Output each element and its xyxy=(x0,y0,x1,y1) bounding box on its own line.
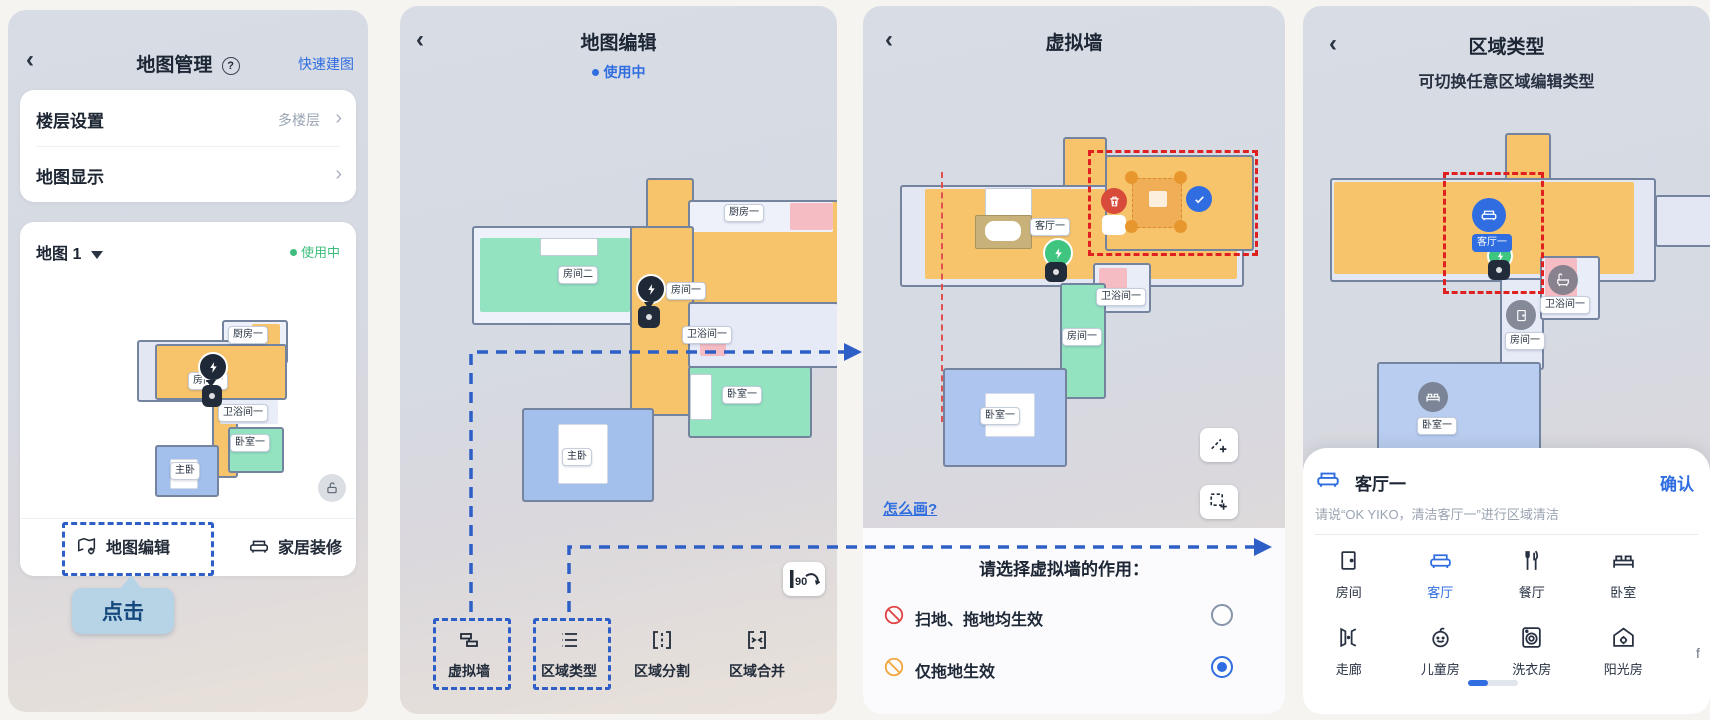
room-chip: 房间二 xyxy=(558,266,598,284)
type-label: 儿童房 xyxy=(1421,659,1460,678)
home-decor-label: 家居装修 xyxy=(278,534,342,558)
type-label: 客厅 xyxy=(1427,582,1453,601)
virtual-wall-highlight-box xyxy=(433,618,511,690)
selection-highlight-box xyxy=(1443,172,1544,294)
map-card: 地图 1 使用中 厨房一 房间一 卫浴间一 卧室一 xyxy=(20,222,356,576)
room-chip: 卫浴间一 xyxy=(682,326,732,344)
room-chip: 厨房一 xyxy=(228,326,268,344)
page-title-text: 地图管理 xyxy=(136,55,212,76)
floor-plan: 客厅一 卫浴间一 房间一 卧室一 xyxy=(863,6,1285,528)
room-chip: 卫浴间一 xyxy=(1540,296,1590,314)
add-rect-zone-button[interactable] xyxy=(1200,485,1238,519)
confirm-button[interactable]: 确认 xyxy=(1660,470,1694,495)
room-chip: 主卧 xyxy=(562,448,592,466)
panel-map-edit: ‹ 地图编辑 使用中 厨房一 房间二 房间一 卫浴间一 卧室一 主卧 xyxy=(400,6,837,714)
home-decor-button[interactable]: 家居装修 xyxy=(248,534,342,558)
room-chip: 主卧 xyxy=(170,462,200,480)
robot-icon xyxy=(1045,262,1067,282)
no-entry-icon xyxy=(883,656,905,678)
type-living-room[interactable]: 客厅 xyxy=(1427,548,1453,601)
area-type-highlight-box xyxy=(533,618,611,690)
room-chip: 卫浴间一 xyxy=(1096,288,1146,306)
virtual-wall-line[interactable] xyxy=(941,172,943,422)
merge-brackets-icon xyxy=(745,628,769,652)
panel-virtual-wall: ‹ 虚拟墙 客厅一 卫浴间一 房间一 卧室一 xyxy=(863,6,1285,714)
option-mop-only[interactable]: 仅拖地生效 xyxy=(863,650,1285,686)
option-label: 仅拖地生效 xyxy=(915,658,995,682)
chevron-right-icon: › xyxy=(335,164,342,184)
room-chip: 卧室一 xyxy=(722,386,762,404)
panel-map-management: ‹ 地图管理 ? 快速建图 楼层设置 多楼层 › 地图显示 › 地图 1 xyxy=(8,10,368,712)
floor-settings-value: 多楼层 xyxy=(278,110,320,130)
type-label: 走廊 xyxy=(1336,659,1362,678)
type-kids-room[interactable]: 儿童房 xyxy=(1421,625,1460,678)
help-icon[interactable]: ? xyxy=(222,57,240,75)
type-label: 餐厅 xyxy=(1519,582,1545,601)
pagination-thumb[interactable] xyxy=(1468,680,1488,686)
room-chip: 卫浴间一 xyxy=(218,404,268,422)
zone-handle[interactable] xyxy=(1125,220,1138,233)
delete-zone-button[interactable] xyxy=(1101,188,1127,214)
room-type-grid: 房间 客厅 餐厅 卧室 走廊 xyxy=(1303,548,1669,678)
type-sunroom[interactable]: 阳光房 xyxy=(1604,625,1643,678)
floor-plan: 厨房一 房间二 房间一 卫浴间一 卧室一 主卧 xyxy=(400,6,837,566)
split-brackets-icon xyxy=(650,628,674,652)
floor-plan: 客厅一 卫浴间一 房间一 卧室一 xyxy=(1303,6,1710,448)
radio-sweep-mop[interactable] xyxy=(1211,604,1233,626)
add-line-wall-button[interactable] xyxy=(1200,428,1238,462)
room-chip: 房间一 xyxy=(666,282,706,300)
toolbar-label: 区域合并 xyxy=(729,661,785,681)
room-chip: 房间一 xyxy=(1505,332,1545,350)
type-dining-room[interactable]: 餐厅 xyxy=(1519,548,1545,601)
map-edit-highlight-box xyxy=(62,522,214,576)
cutoff-text: f xyxy=(1696,645,1700,661)
wall-mode-prompt: 请选择虚拟墙的作用： xyxy=(863,555,1265,580)
type-label: 卧室 xyxy=(1610,582,1636,601)
arrowhead-icon xyxy=(844,343,862,361)
how-to-draw-link[interactable]: 怎么画? xyxy=(883,498,937,519)
svg-text:90: 90 xyxy=(795,576,807,588)
sofa-icon xyxy=(248,535,270,557)
type-room[interactable]: 房间 xyxy=(1336,548,1362,601)
panel-area-type: ‹ 区域类型 可切换任意区域编辑类型 客厅一 xyxy=(1303,6,1710,714)
option-sweep-mop[interactable]: 扫地、拖地均生效 xyxy=(863,598,1285,634)
toolbar-label: 区域分割 xyxy=(634,661,690,681)
option-label: 扫地、拖地均生效 xyxy=(915,606,1043,630)
floor-settings-label: 楼层设置 xyxy=(36,107,104,132)
zone-handle[interactable] xyxy=(1125,171,1138,184)
virtual-wall-zone[interactable] xyxy=(1132,178,1182,228)
room-type-sheet: 客厅一 确认 请说“OK YIKO，清洁客厅一”进行区域清洁 房间 客厅 餐厅 xyxy=(1303,448,1710,714)
type-bedroom[interactable]: 卧室 xyxy=(1610,548,1636,601)
quick-build-link[interactable]: 快速建图 xyxy=(298,54,354,74)
confirm-zone-button[interactable] xyxy=(1186,186,1212,212)
type-corridor[interactable]: 走廊 xyxy=(1336,625,1362,678)
floor-settings-row[interactable]: 楼层设置 多楼层 › xyxy=(20,90,356,146)
robot-icon xyxy=(202,385,222,407)
type-label: 洗衣房 xyxy=(1512,659,1551,678)
toolbar-area-split[interactable]: 区域分割 xyxy=(621,628,703,681)
settings-card: 楼层设置 多楼层 › 地图显示 › xyxy=(20,90,356,202)
rotate-90-button[interactable]: 90 xyxy=(783,562,825,596)
chevron-right-icon: › xyxy=(335,108,342,128)
zone-handle[interactable] xyxy=(1174,220,1187,233)
room-chip: 房间一 xyxy=(1062,328,1102,346)
map-display-row[interactable]: 地图显示 › xyxy=(20,146,356,202)
room-chip: 卧室一 xyxy=(230,434,270,452)
map-display-label: 地图显示 xyxy=(36,163,104,188)
room-chip: 卧室一 xyxy=(980,407,1020,425)
room-type-icon[interactable] xyxy=(1506,300,1536,330)
screenshot-stage: ‹ 地图管理 ? 快速建图 楼层设置 多楼层 › 地图显示 › 地图 1 xyxy=(0,0,1710,720)
type-label: 房间 xyxy=(1336,582,1362,601)
room-chip: 厨房一 xyxy=(724,204,764,222)
robot-icon xyxy=(638,306,660,328)
pagination-track xyxy=(1468,680,1518,686)
sofa-icon xyxy=(1315,466,1341,492)
bedroom-type-icon[interactable] xyxy=(1418,382,1448,412)
voice-hint: 请说“OK YIKO，清洁客厅一”进行区域清洁 xyxy=(1315,504,1559,523)
dock-icon xyxy=(198,352,228,382)
room-chip: 卧室一 xyxy=(1417,417,1457,435)
click-callout: 点击 xyxy=(72,588,174,634)
room-chip: 客厅一 xyxy=(1030,218,1070,236)
selected-room-name: 客厅一 xyxy=(1355,470,1406,495)
no-entry-icon xyxy=(883,604,905,626)
toolbar-area-merge[interactable]: 区域合并 xyxy=(716,628,798,681)
radio-mop-only[interactable] xyxy=(1211,656,1233,678)
mini-map: 厨房一 房间一 卫浴间一 卧室一 主卧 xyxy=(20,222,356,522)
type-label: 阳光房 xyxy=(1604,659,1643,678)
type-laundry-room[interactable]: 洗衣房 xyxy=(1512,625,1551,678)
lock-button[interactable] xyxy=(318,474,346,502)
dock-icon xyxy=(636,274,666,304)
bathroom-type-icon[interactable] xyxy=(1548,265,1578,295)
zone-handle[interactable] xyxy=(1174,171,1187,184)
